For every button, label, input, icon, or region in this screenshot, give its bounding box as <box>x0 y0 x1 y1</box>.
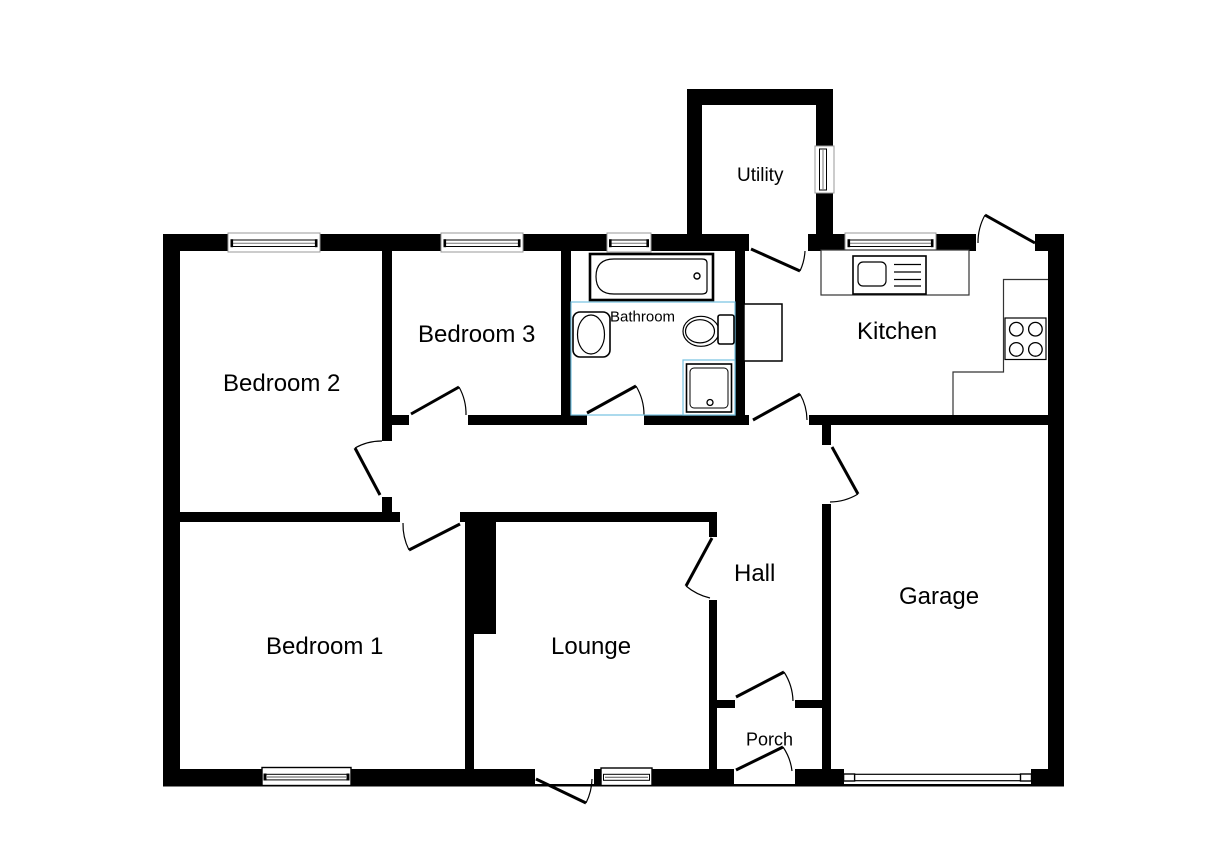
svg-text:Hall: Hall <box>734 560 775 587</box>
svg-text:Bedroom 1: Bedroom 1 <box>266 633 383 660</box>
svg-text:Garage: Garage <box>899 583 979 610</box>
svg-text:Bedroom 3: Bedroom 3 <box>418 321 535 348</box>
svg-text:Porch: Porch <box>746 730 793 750</box>
svg-text:Bathroom: Bathroom <box>610 309 675 326</box>
svg-text:Bedroom 2: Bedroom 2 <box>223 370 340 397</box>
svg-text:Kitchen: Kitchen <box>857 318 937 345</box>
svg-text:Lounge: Lounge <box>551 633 631 660</box>
svg-text:Utility: Utility <box>737 165 784 186</box>
